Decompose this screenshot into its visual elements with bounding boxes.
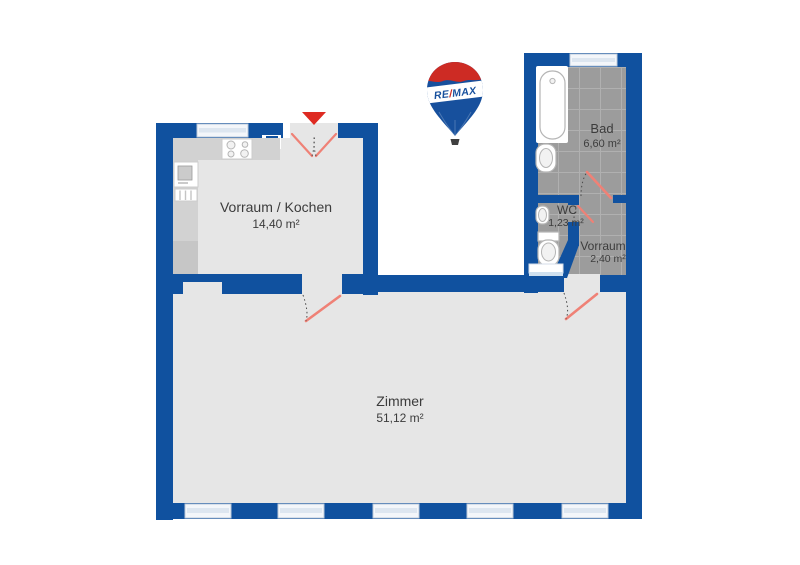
room-area-vorraum: 2,40 m² xyxy=(590,253,626,265)
right-wall xyxy=(626,53,642,519)
kitchen-zimmer-wall xyxy=(156,274,302,294)
window-icon xyxy=(467,504,513,518)
vorraum-bottom-wall xyxy=(524,274,564,292)
bathtub-icon xyxy=(536,66,568,143)
wc-sink-icon xyxy=(536,206,549,224)
vorraum-doorway-floor xyxy=(564,274,600,286)
room-label-zimmer: Zimmer xyxy=(376,393,424,409)
radiator-icon xyxy=(175,189,197,201)
balloon-red-top xyxy=(424,60,486,82)
stove-icon xyxy=(222,139,252,159)
wall-niche xyxy=(183,282,222,294)
window-icon xyxy=(373,504,419,518)
room-area-zimmer: 51,12 m² xyxy=(376,411,423,425)
toilet-icon xyxy=(538,232,559,266)
window-icon xyxy=(570,54,617,66)
window-icon xyxy=(185,504,231,518)
shelf-icon xyxy=(529,264,563,276)
room-label-vorraum: Vorraum xyxy=(580,239,625,253)
bad-wc-wall-right xyxy=(613,195,642,203)
floor-plan-drawing: Vorraum / Kochen 14,40 m² Bad 6,60 m² WC… xyxy=(0,0,800,565)
room-area-wc: 1,23 m² xyxy=(548,217,584,229)
bathroom-left-wall xyxy=(524,53,538,293)
room-area-vorraum-kochen: 14,40 m² xyxy=(252,217,299,231)
remax-balloon-logo: RE/MAX xyxy=(419,60,490,145)
window-icon xyxy=(562,504,608,518)
room-label-vorraum-kochen: Vorraum / Kochen xyxy=(220,199,332,215)
entrance-opening-floor xyxy=(290,123,338,139)
balloon-basket xyxy=(451,139,460,145)
bathroom-sink-icon xyxy=(536,144,556,172)
room-label-wc: WC xyxy=(557,203,577,217)
left-wall xyxy=(156,123,173,520)
window-icon xyxy=(197,124,248,137)
kitchen-sink-unit-icon xyxy=(174,162,198,187)
room-label-bad: Bad xyxy=(590,121,613,136)
kitchen-right-wall xyxy=(363,123,378,295)
room-area-bad: 6,60 m² xyxy=(583,138,621,150)
floor-plan: Vorraum / Kochen 14,40 m² Bad 6,60 m² WC… xyxy=(0,0,800,565)
window-icon xyxy=(278,504,324,518)
entrance-jamb xyxy=(283,123,290,138)
